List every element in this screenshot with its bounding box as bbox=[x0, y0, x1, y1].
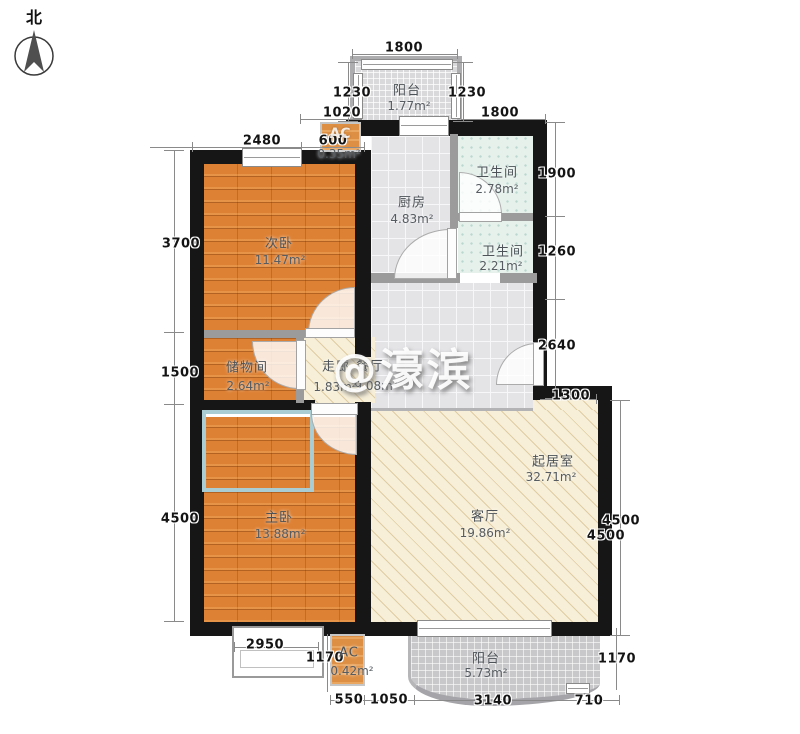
bathroom2-label: 卫生间 bbox=[482, 241, 524, 260]
dim-tick bbox=[610, 635, 630, 636]
dim-right-4500-a: 4500 bbox=[602, 514, 640, 529]
dim-tick bbox=[164, 150, 184, 151]
top-balcony-label: 阳台 bbox=[393, 80, 421, 99]
dim-bedroom2-2480: 2480 bbox=[243, 134, 281, 149]
bottom-balcony-area: 5.73m² bbox=[464, 666, 507, 680]
dim-right-1260: 1260 bbox=[538, 245, 576, 260]
storage-area: 2.64m² bbox=[226, 379, 269, 393]
ac-top-area: 0.35m² bbox=[317, 147, 360, 161]
master-bay-frame bbox=[202, 410, 314, 492]
dim-tick bbox=[610, 400, 630, 401]
dim-line bbox=[174, 150, 175, 622]
dim-bottom-550: 550 bbox=[335, 693, 364, 708]
bathroom1-door-leaf bbox=[459, 212, 502, 222]
ac-bottom-label: AC bbox=[339, 646, 359, 661]
dim-tick bbox=[301, 142, 302, 152]
dim-tick bbox=[596, 394, 597, 404]
dim-balcony-left-1230: 1230 bbox=[333, 86, 371, 101]
dim-bottom-1050: 1050 bbox=[370, 693, 408, 708]
dim-tick bbox=[338, 121, 358, 122]
watermark: @濠滨 bbox=[333, 334, 474, 398]
ac-top-label: AC bbox=[329, 126, 350, 142]
kitchen-label: 厨房 bbox=[398, 192, 426, 211]
dim-tick bbox=[453, 62, 473, 63]
dim-line bbox=[555, 122, 556, 400]
dining-living-divider bbox=[371, 408, 533, 411]
compass-icon bbox=[10, 28, 58, 80]
dim-right-2640: 2640 bbox=[538, 339, 576, 354]
living-zone-area: 32.71m² bbox=[526, 470, 577, 484]
dim-tick bbox=[414, 695, 415, 705]
master-bedroom-area: 13.88m² bbox=[255, 527, 306, 541]
dim-tick bbox=[545, 122, 565, 123]
dim-tick bbox=[453, 121, 473, 122]
living-balcony-door-window bbox=[417, 620, 552, 637]
kitchen-door-leaf bbox=[447, 228, 457, 279]
dim-tick bbox=[192, 142, 193, 152]
top-balcony-area: 1.77m² bbox=[387, 99, 430, 113]
north-label: 北 bbox=[10, 4, 58, 28]
bedroom2-window bbox=[242, 148, 302, 167]
kitchen-window bbox=[399, 116, 449, 136]
north-indicator: 北 bbox=[10, 4, 58, 76]
dim-tick bbox=[364, 695, 365, 705]
dim-right-1900: 1900 bbox=[538, 167, 576, 182]
dim-tick bbox=[364, 142, 365, 152]
dim-bottom-2950: 2950 bbox=[246, 638, 284, 653]
dim-tick bbox=[164, 404, 184, 405]
bathroom1-label: 卫生间 bbox=[476, 162, 518, 181]
dim-tick bbox=[338, 62, 358, 63]
master-bay-window-inner bbox=[240, 650, 314, 668]
dim-left-1020: 1020 bbox=[323, 106, 361, 121]
bedroom2-area: 11.47m² bbox=[255, 253, 306, 267]
bath2-opening bbox=[460, 273, 500, 283]
ac-bottom-area: 0.42m² bbox=[330, 664, 373, 678]
floor-plan: 1800 1230 1230 1020 1800 2480 600 3700 1… bbox=[0, 0, 800, 734]
dim-left-3700: 3700 bbox=[162, 237, 200, 252]
top-balcony-window bbox=[361, 59, 453, 70]
dim-tick bbox=[164, 621, 184, 622]
dim-tick bbox=[164, 332, 184, 333]
dim-tick bbox=[619, 695, 620, 705]
storage-label: 储物间 bbox=[226, 357, 268, 376]
wall-mid-upper bbox=[355, 150, 371, 357]
dim-tick bbox=[457, 49, 458, 59]
master-door-leaf bbox=[311, 403, 358, 415]
dim-right-1300: 1300 bbox=[552, 389, 590, 404]
partition-bedroom2-bottom bbox=[204, 330, 306, 338]
dim-right-1800: 1800 bbox=[481, 106, 519, 121]
bottom-balcony-label: 阳台 bbox=[472, 648, 500, 667]
dim-left-1500: 1500 bbox=[161, 366, 199, 381]
bathroom1-area: 2.78m² bbox=[475, 182, 518, 196]
living-zone-label: 起居室 bbox=[532, 451, 574, 470]
storage-door-leaf bbox=[296, 340, 306, 390]
dim-left-4500: 4500 bbox=[161, 512, 199, 527]
dim-bottom-710: 710 bbox=[575, 694, 604, 709]
dim-tick bbox=[352, 49, 353, 59]
bathroom2-area: 2.21m² bbox=[479, 259, 522, 273]
bottom-balcony-sill bbox=[566, 683, 590, 694]
wall-left bbox=[190, 150, 204, 636]
dim-tick bbox=[545, 216, 565, 217]
bedroom2-label: 次卧 bbox=[265, 233, 293, 252]
dim-bottom-right-1170: 1170 bbox=[598, 652, 636, 667]
dim-top-1800: 1800 bbox=[385, 41, 423, 56]
dim-tick bbox=[300, 114, 301, 124]
living-room-area: 19.86m² bbox=[460, 526, 511, 540]
dim-tick bbox=[545, 299, 565, 300]
dim-tick bbox=[330, 695, 331, 705]
dim-bottom-3140: 3140 bbox=[474, 694, 512, 709]
living-room-label: 客厅 bbox=[471, 506, 499, 525]
dim-right-4500-b: 4500 bbox=[587, 529, 625, 544]
dim-tick bbox=[234, 642, 235, 652]
wall-mid-lower bbox=[355, 402, 371, 622]
dim-balcony-right-1230: 1230 bbox=[448, 86, 486, 101]
kitchen-area: 4.83m² bbox=[390, 212, 433, 226]
partition-kitchen-bath bbox=[450, 134, 458, 228]
master-bedroom-label: 主卧 bbox=[265, 507, 293, 526]
